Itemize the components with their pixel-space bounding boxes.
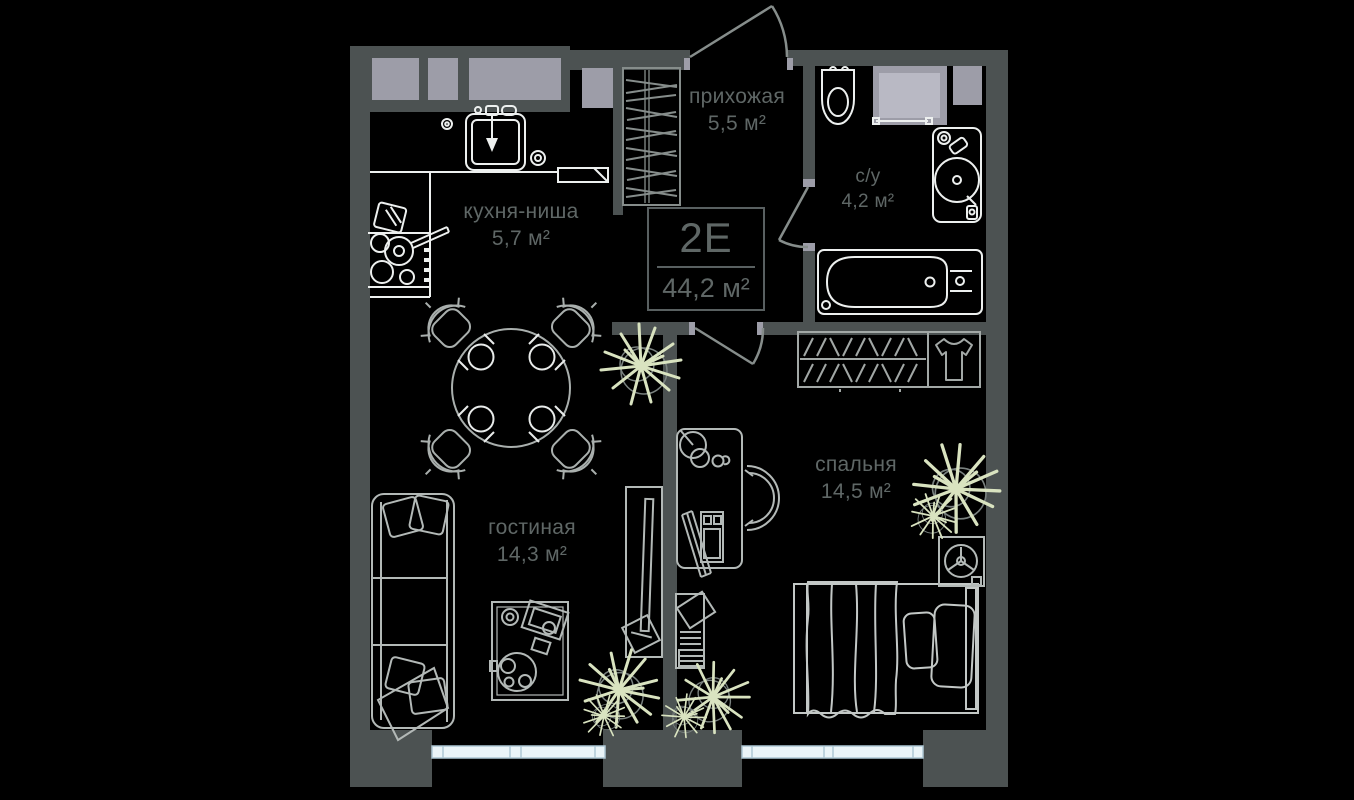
window-living-icon — [432, 746, 605, 758]
desk-chair-icon — [745, 466, 779, 530]
room-area: 4,2 м² — [842, 189, 895, 214]
plant-icon — [568, 637, 671, 740]
kitchen-sink-icon — [442, 106, 545, 170]
room-label-kitchen: кухня-ниша 5,7 м² — [463, 198, 578, 252]
window-bedroom-icon — [742, 746, 923, 758]
room-area: 5,5 м² — [689, 110, 785, 137]
plates — [458, 334, 565, 442]
desk-icon — [677, 429, 742, 577]
fan-icon — [939, 537, 984, 586]
bedroom-wardrobe-icon — [798, 332, 980, 392]
bed-icon — [794, 582, 978, 718]
room-label-hallway: прихожая 5,5 м² — [689, 83, 785, 137]
room-name: спальня — [815, 451, 897, 478]
apartment-type-badge: 2Е 44,2 м² — [647, 207, 765, 311]
room-name: кухня-ниша — [463, 198, 578, 225]
floor-plan: прихожая 5,5 м² с/у 4,2 м² кухня-ниша 5,… — [0, 0, 1354, 800]
room-area: 5,7 м² — [463, 225, 578, 252]
coffee-table-icon — [490, 601, 568, 700]
tshirt-icon — [936, 339, 972, 380]
room-area: 14,5 м² — [815, 478, 897, 505]
dining-table-icon — [407, 284, 616, 494]
floor-plan-drawing — [0, 0, 1354, 800]
sofa-icon — [372, 494, 454, 740]
plant-icon — [669, 650, 761, 742]
room-name: гостиная — [488, 514, 576, 541]
entrance-door-icon — [690, 6, 787, 57]
tv-stand-icon — [622, 487, 662, 657]
toilet-icon — [822, 67, 854, 124]
room-label-bathroom: с/у 4,2 м² — [842, 164, 895, 214]
apartment-total-area: 44,2 м² — [662, 275, 750, 302]
washing-machine-icon — [933, 128, 981, 222]
apartment-type: 2Е — [679, 217, 732, 259]
bookshelf-icon — [676, 592, 715, 668]
stove-icon — [371, 227, 449, 284]
room-area: 14,3 м² — [488, 541, 576, 568]
badge-divider — [657, 266, 755, 268]
bathtub-icon — [818, 250, 982, 314]
hall-closet-icon — [623, 68, 680, 205]
room-name: с/у — [842, 164, 895, 189]
bathroom-door-icon — [779, 187, 808, 247]
living-door-icon — [695, 328, 763, 364]
room-name: прихожая — [689, 83, 785, 110]
room-label-living: гостиная 14,3 м² — [488, 514, 576, 568]
cutting-board-icon — [374, 202, 407, 233]
room-label-bedroom: спальня 14,5 м² — [815, 451, 897, 505]
